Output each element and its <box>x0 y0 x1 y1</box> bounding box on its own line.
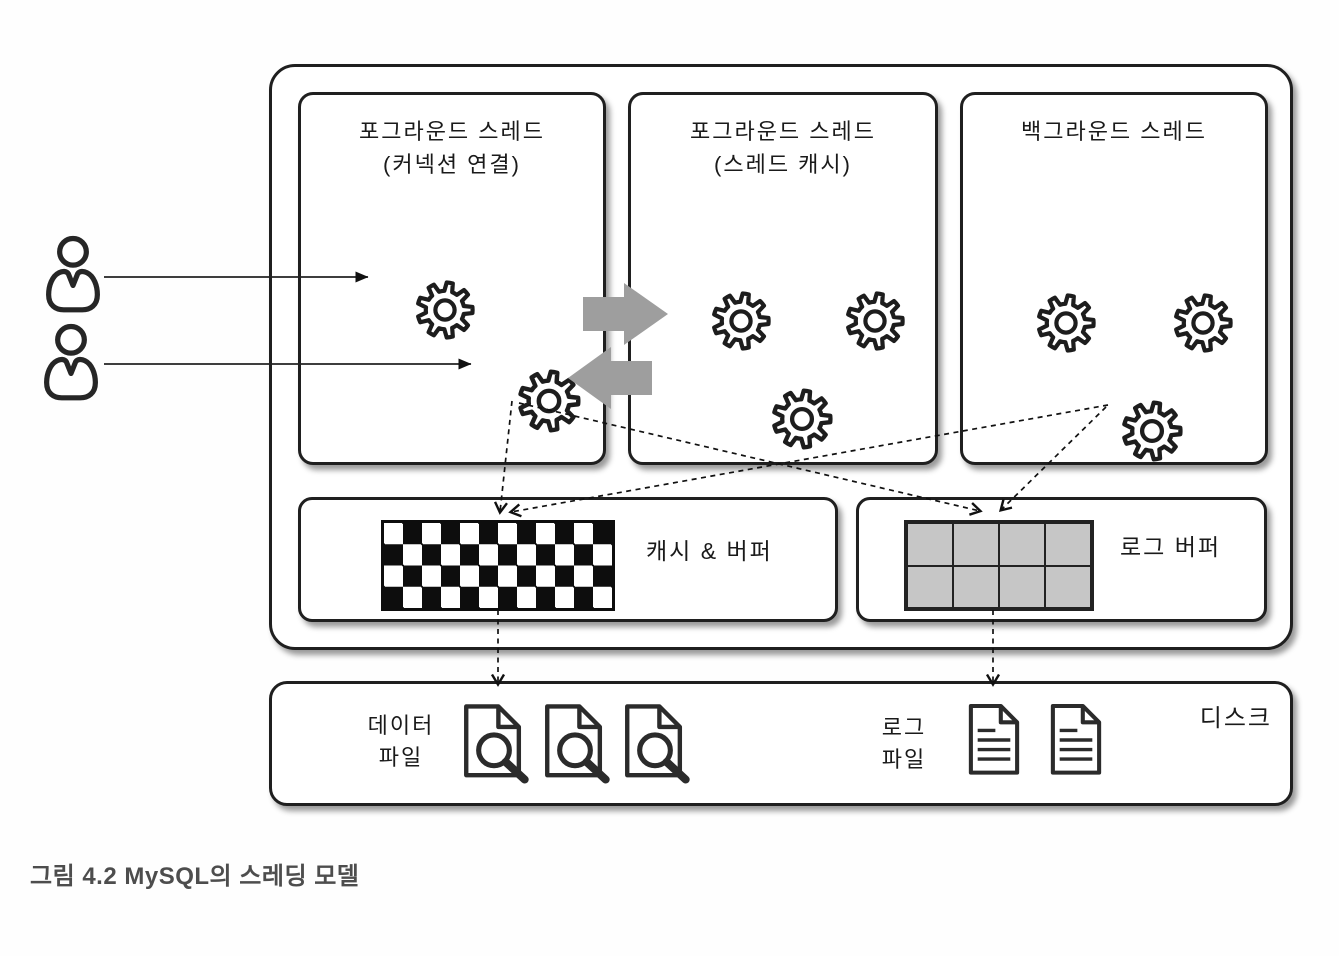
thread-box-subtitle-line: (커넥션 연결) <box>301 148 603 181</box>
figure-caption: 그림 4.2 MySQL의 스레딩 모델 <box>30 856 359 891</box>
log-file-document-icon <box>1042 699 1110 781</box>
data-file-label: 데이터 파일 <box>346 710 456 774</box>
log-buffer-cell <box>1045 523 1091 566</box>
log-file-label-line2: 파일 <box>858 744 950 776</box>
log-file-label: 로그 파일 <box>858 712 950 776</box>
log-buffer-cell <box>999 523 1045 566</box>
cache-buffer-box: 캐시 & 버퍼 <box>298 497 838 622</box>
thread-box-title-line: 포그라운드 스레드 <box>631 115 935 148</box>
user-icon <box>44 233 102 317</box>
mysql-server-box: 포그라운드 스레드 (커넥션 연결) 포그라운드 스레드 (스레드 캐시) 백그… <box>269 64 1293 650</box>
thread-box-foreground-thread-cache: 포그라운드 스레드 (스레드 캐시) <box>628 92 938 465</box>
gear-icon <box>1000 257 1066 323</box>
log-file-document-icon <box>960 699 1028 781</box>
thread-box-subtitle-line: (스레드 캐시) <box>631 148 935 181</box>
gear-icon <box>734 351 802 419</box>
log-buffer-grid <box>904 520 1094 611</box>
cache-buffer-label: 캐시 & 버퍼 <box>646 532 773 566</box>
gear-icon <box>1084 363 1152 431</box>
data-file-label-line2: 파일 <box>346 742 456 774</box>
gear-icon <box>675 255 741 321</box>
data-file-magnifier-icon <box>617 700 693 786</box>
thread-box-title-line: 백그라운드 스레드 <box>963 115 1265 148</box>
log-buffer-cell <box>907 523 953 566</box>
user-icon <box>42 321 100 405</box>
data-file-label-line1: 데이터 <box>346 710 456 742</box>
cache-buffer-checkerboard-pattern <box>381 520 615 611</box>
log-buffer-cell <box>999 566 1045 609</box>
log-file-label-line1: 로그 <box>858 712 950 744</box>
mysql-threading-model-figure: 포그라운드 스레드 (커넥션 연결) 포그라운드 스레드 (스레드 캐시) 백그… <box>0 0 1339 956</box>
thread-box-title-line: 포그라운드 스레드 <box>301 115 603 148</box>
log-buffer-cell <box>1045 566 1091 609</box>
thread-box-title: 백그라운드 스레드 <box>963 95 1265 148</box>
log-buffer-box: 로그 버퍼 <box>856 497 1267 622</box>
gear-icon <box>379 244 445 310</box>
thread-box-title: 포그라운드 스레드 (스레드 캐시) <box>631 95 935 181</box>
data-file-magnifier-icon <box>537 700 613 786</box>
log-buffer-cell <box>953 566 999 609</box>
thread-box-title: 포그라운드 스레드 (커넥션 연결) <box>301 95 603 181</box>
gear-icon <box>809 255 875 321</box>
gear-icon <box>1137 257 1203 323</box>
disk-label: 디스크 <box>1172 698 1272 733</box>
gear-icon <box>479 331 549 401</box>
disk-box: 데이터 파일 로그 파일 디스크 <box>269 681 1293 806</box>
data-file-magnifier-icon <box>456 700 532 786</box>
thread-box-foreground-connection: 포그라운드 스레드 (커넥션 연결) <box>298 92 606 465</box>
log-buffer-cell <box>953 523 999 566</box>
log-buffer-label: 로그 버퍼 <box>1120 528 1221 562</box>
thread-box-background: 백그라운드 스레드 <box>960 92 1268 465</box>
log-buffer-cell <box>907 566 953 609</box>
